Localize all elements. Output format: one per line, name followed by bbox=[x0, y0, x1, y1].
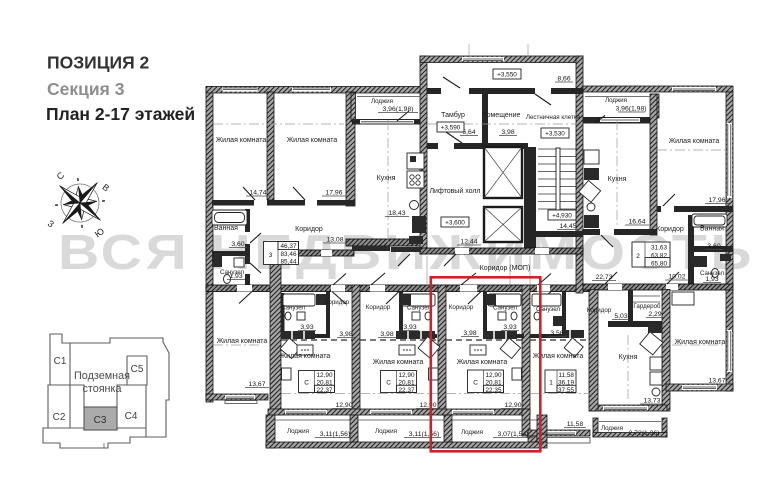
svg-text:13,73: 13,73 bbox=[643, 398, 660, 405]
svg-text:20,81: 20,81 bbox=[399, 380, 415, 387]
svg-text:3,98: 3,98 bbox=[463, 330, 476, 337]
svg-text:2,29: 2,29 bbox=[648, 311, 661, 318]
svg-text:31,63: 31,63 bbox=[651, 245, 667, 252]
svg-text:14,45: 14,45 bbox=[559, 223, 576, 230]
svg-text:Гардероб: Гардероб bbox=[633, 303, 661, 310]
svg-text:3,98: 3,98 bbox=[501, 129, 514, 136]
svg-text:Кухня: Кухня bbox=[377, 175, 396, 182]
svg-text:Санузел: Санузел bbox=[407, 305, 431, 312]
svg-text:20,81: 20,81 bbox=[486, 380, 502, 387]
svg-text:С: С bbox=[473, 380, 478, 387]
svg-text:11,58: 11,58 bbox=[567, 421, 584, 428]
svg-text:10,02: 10,02 bbox=[668, 274, 685, 281]
svg-text:22,73: 22,73 bbox=[595, 274, 612, 281]
svg-text:13,67: 13,67 bbox=[248, 381, 265, 388]
svg-text:С: С bbox=[304, 380, 309, 387]
svg-text:12,90: 12,90 bbox=[504, 402, 521, 409]
svg-text:3,93: 3,93 bbox=[503, 324, 516, 331]
svg-text:С4: С4 bbox=[125, 411, 138, 422]
svg-text:Кухня: Кухня bbox=[619, 354, 638, 361]
svg-text:3,93: 3,93 bbox=[300, 324, 313, 331]
svg-text:12,44: 12,44 bbox=[460, 239, 477, 246]
svg-text:22,37: 22,37 bbox=[317, 387, 333, 394]
svg-text:С5: С5 bbox=[131, 364, 144, 375]
svg-text:3,60: 3,60 bbox=[231, 241, 244, 248]
svg-text:3: 3 bbox=[269, 252, 273, 259]
svg-text:16,64: 16,64 bbox=[628, 219, 645, 226]
svg-text:Санузел: Санузел bbox=[281, 305, 305, 312]
svg-text:З: З bbox=[46, 218, 56, 229]
svg-text:Коридор (МОП): Коридор (МОП) bbox=[480, 265, 531, 272]
svg-text:Ванная: Ванная bbox=[700, 226, 724, 233]
svg-text:37,55: 37,55 bbox=[558, 387, 574, 394]
svg-text:5,03: 5,03 bbox=[614, 313, 627, 320]
svg-text:17,96: 17,96 bbox=[325, 190, 342, 197]
svg-text:3,98: 3,98 bbox=[339, 331, 352, 338]
svg-text:2: 2 bbox=[636, 253, 640, 260]
svg-text:Помещение: Помещение bbox=[482, 112, 521, 119]
svg-text:12,90: 12,90 bbox=[399, 372, 415, 379]
svg-text:Жилая комната: Жилая комната bbox=[287, 137, 338, 144]
svg-text:С2: С2 bbox=[53, 412, 66, 423]
svg-text:Жилая комната: Жилая комната bbox=[669, 138, 720, 145]
svg-text:3,93: 3,93 bbox=[403, 324, 416, 331]
svg-text:36,19: 36,19 bbox=[558, 380, 574, 387]
svg-text:Жилая комната: Жилая комната bbox=[675, 339, 726, 346]
svg-text:17,96: 17,96 bbox=[708, 197, 725, 204]
svg-text:12,90: 12,90 bbox=[419, 402, 436, 409]
svg-text:В: В bbox=[100, 182, 111, 194]
svg-text:Коридор: Коридор bbox=[449, 304, 474, 311]
svg-text:Лоджия: Лоджия bbox=[461, 429, 483, 436]
svg-text:+3,550: +3,550 bbox=[497, 72, 517, 79]
svg-text:18,43: 18,43 bbox=[388, 210, 405, 217]
svg-text:+3,530: +3,530 bbox=[545, 131, 565, 138]
svg-text:12,90: 12,90 bbox=[486, 372, 502, 379]
svg-text:83,46: 83,46 bbox=[281, 251, 297, 258]
svg-text:12,90: 12,90 bbox=[335, 402, 352, 409]
svg-text:3,96(1,98): 3,96(1,98) bbox=[616, 106, 647, 113]
svg-text:11,58: 11,58 bbox=[558, 372, 574, 379]
svg-text:Лоджия: Лоджия bbox=[371, 98, 393, 105]
svg-text:Коридор: Коридор bbox=[366, 304, 391, 311]
svg-text:63,82: 63,82 bbox=[651, 253, 667, 260]
svg-text:8,66: 8,66 bbox=[557, 76, 570, 83]
svg-text:Жилая комната: Жилая комната bbox=[457, 359, 508, 366]
svg-text:стоянка: стоянка bbox=[82, 383, 121, 395]
svg-text:Лоджия: Лоджия bbox=[375, 428, 397, 435]
svg-text:Санузел: Санузел bbox=[493, 305, 517, 312]
svg-text:2,72(1,36): 2,72(1,36) bbox=[629, 430, 660, 437]
svg-text:14,74: 14,74 bbox=[249, 190, 266, 197]
svg-text:12,90: 12,90 bbox=[317, 372, 333, 379]
svg-text:+4,930: +4,930 bbox=[552, 213, 572, 220]
svg-text:46,37: 46,37 bbox=[281, 243, 297, 250]
svg-text:Лоджия: Лоджия bbox=[601, 425, 623, 432]
svg-text:22,37: 22,37 bbox=[399, 387, 415, 394]
svg-text:Лифтовый холл: Лифтовый холл bbox=[429, 187, 480, 195]
svg-text:План 2-17 этажей: План 2-17 этажей bbox=[46, 104, 195, 124]
svg-text:С1: С1 bbox=[54, 356, 67, 367]
svg-text:Коридор: Коридор bbox=[656, 226, 684, 233]
svg-text:20,81: 20,81 bbox=[317, 380, 333, 387]
svg-text:1,93: 1,93 bbox=[705, 276, 718, 283]
svg-text:Жилая комната: Жилая комната bbox=[216, 137, 267, 144]
svg-text:С: С bbox=[386, 380, 391, 387]
svg-text:Жилая комната: Жилая комната bbox=[280, 353, 331, 360]
svg-text:Коридор: Коридор bbox=[325, 299, 350, 306]
svg-text:13,08: 13,08 bbox=[326, 237, 343, 244]
svg-text:3,07(1,54): 3,07(1,54) bbox=[498, 431, 529, 438]
svg-text:3,98: 3,98 bbox=[380, 331, 393, 338]
svg-text:С3: С3 bbox=[94, 415, 107, 426]
svg-text:Жилая комната: Жилая комната bbox=[373, 359, 424, 366]
svg-text:85,44: 85,44 bbox=[281, 259, 297, 266]
svg-text:Жилая комната: Жилая комната bbox=[217, 338, 268, 345]
svg-text:Кухня: Кухня bbox=[608, 176, 627, 183]
svg-text:Коридор: Коридор bbox=[295, 226, 323, 233]
svg-text:3,60: 3,60 bbox=[707, 243, 720, 250]
svg-text:3,96(1,98): 3,96(1,98) bbox=[383, 106, 414, 113]
svg-text:3,56: 3,56 bbox=[550, 330, 563, 337]
svg-text:13,67: 13,67 bbox=[708, 378, 725, 385]
svg-text:Лестничная клетка: Лестничная клетка bbox=[526, 114, 581, 121]
svg-text:3,11(1,56): 3,11(1,56) bbox=[320, 431, 350, 438]
svg-text:Секция 3: Секция 3 bbox=[47, 79, 125, 99]
svg-text:+3,590: +3,590 bbox=[441, 125, 461, 132]
svg-text:ПОЗИЦИЯ 2: ПОЗИЦИЯ 2 bbox=[47, 53, 150, 73]
svg-text:+3,600: +3,600 bbox=[445, 220, 465, 227]
svg-text:Ванная: Ванная bbox=[214, 225, 238, 232]
svg-text:3,11(1,56): 3,11(1,56) bbox=[409, 431, 439, 438]
svg-text:Коридор: Коридор bbox=[587, 307, 612, 314]
svg-text:22,35: 22,35 bbox=[486, 387, 502, 394]
svg-text:Тамбур: Тамбур bbox=[441, 111, 465, 119]
svg-text:65,80: 65,80 bbox=[651, 261, 667, 268]
svg-text:Лоджия: Лоджия bbox=[605, 97, 627, 104]
svg-text:1,93: 1,93 bbox=[229, 273, 242, 280]
svg-text:Лоджия: Лоджия bbox=[287, 428, 309, 435]
svg-text:Подземная: Подземная bbox=[74, 370, 130, 382]
svg-text:С: С bbox=[55, 170, 67, 182]
svg-text:1: 1 bbox=[549, 380, 553, 387]
